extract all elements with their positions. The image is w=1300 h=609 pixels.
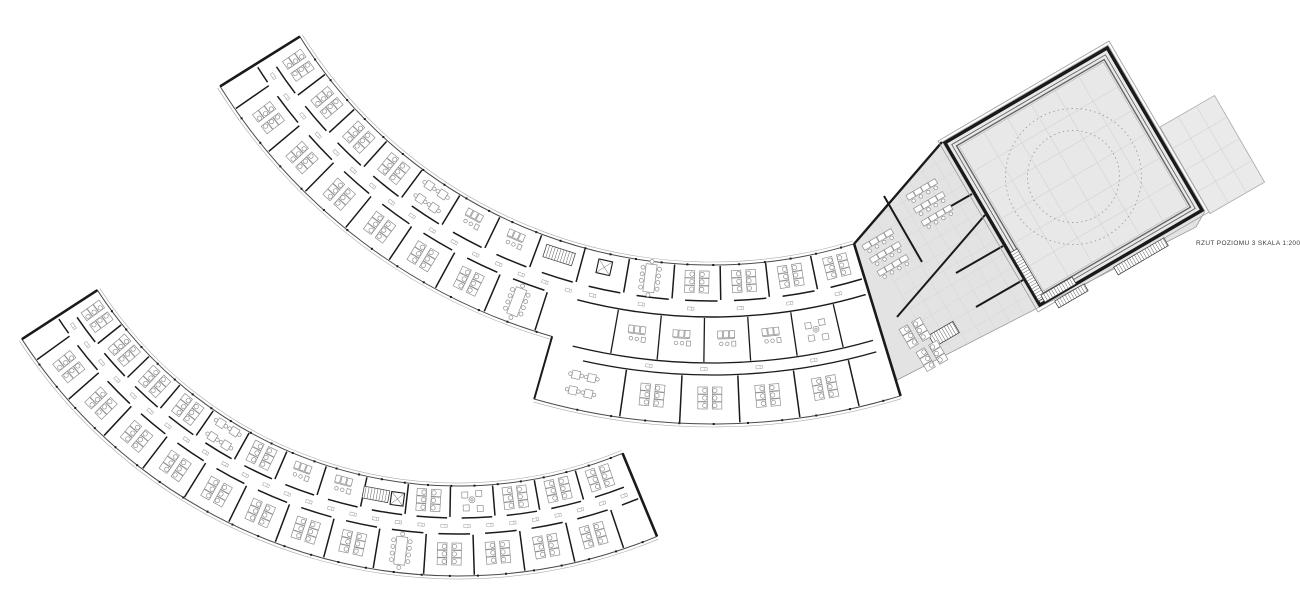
facade-mullion [402,153,404,155]
facade-mullion [565,471,567,473]
room-tag [418,523,425,526]
facade-mullion [114,446,116,448]
facade-mullion [314,58,316,60]
room-tag [786,301,793,305]
facade-mullion [364,118,366,120]
facade-mullion [174,379,176,381]
room-tag [737,307,744,310]
facade-mullion [576,409,578,411]
facade-mullion [313,460,315,462]
facade-mullion [505,573,507,575]
facade-mullion [644,420,646,422]
facade-mullion [713,423,715,425]
facade-mullion [588,558,590,560]
floor-plan-drawing: RZUT POZIOMU 3 SKALA 1:200 [0,0,1300,609]
facade-mullion [271,442,273,444]
room-tag [509,521,516,525]
facade-mullion [615,550,617,552]
facade-mullion [422,169,424,171]
facade-mullion [330,79,332,81]
facade-mullion [393,571,395,573]
facade-mullion [346,229,348,231]
facade-mullion [230,420,232,422]
facade-mullion [511,221,513,223]
facade-mullion [678,422,680,424]
facade-mullion [346,99,348,101]
facade-mullion [371,248,373,250]
facade-mullion [488,210,490,212]
facade-mullion [56,386,58,388]
facade-mullion [257,535,259,537]
facade-mullion [323,209,325,211]
facade-mullion [157,363,159,365]
facade-mullion [465,197,467,199]
facade-mullion [610,457,612,459]
facade-mullion [506,321,508,323]
facade-mullion [536,331,538,333]
facade-mullion [241,117,243,119]
facade-mullion [159,481,161,483]
facade-mullion [450,296,452,298]
facade-mullion [301,188,303,190]
plan-caption: RZUT POZIOMU 3 SKALA 1:200 [1196,240,1300,247]
facade-mullion [404,482,406,484]
facade-mullion [560,240,562,242]
facade-mullion [292,452,294,454]
generated-plan [19,0,1300,579]
facade-mullion [74,407,76,409]
facade-mullion [450,485,452,487]
facade-mullion [365,567,367,569]
facade-mullion [686,263,688,265]
facade-mullion [336,468,338,470]
facade-mullion [474,485,476,487]
room-tag [756,365,763,369]
room-tag [701,367,707,370]
room-tag [487,523,494,526]
facade-mullion [250,432,252,434]
facade-mullion [283,545,285,547]
facade-mullion [882,400,884,402]
facade-mullion [94,427,96,429]
facade-mullion [790,258,792,260]
room-tag [646,364,653,368]
room-tag [464,524,470,527]
facade-mullion [533,569,535,571]
facade-mullion [449,575,451,577]
facade-mullion [358,473,360,475]
facade-mullion [136,464,138,466]
facade-mullion [38,364,40,366]
room-tag [441,524,447,527]
facade-mullion [712,264,714,266]
room-tag [687,307,694,310]
elevator [390,492,405,507]
facade-mullion [259,142,261,144]
facade-mullion [310,554,312,556]
facade-mullion [642,541,644,543]
facade-mullion [543,476,545,478]
facade-mullion [635,258,637,260]
floor-plan-page: RZUT POZIOMU 3 SKALA 1:200 [0,0,1300,609]
facade-mullion [561,565,563,567]
partition-wall [704,318,705,362]
facade-mullion [840,247,842,249]
partition-wall [720,266,721,300]
facade-mullion [815,415,817,417]
facade-mullion [497,483,499,485]
facade-mullion [182,496,184,498]
facade-mullion [337,561,339,563]
facade-mullion [849,408,851,410]
facade-mullion [421,574,423,576]
facade-mullion [610,253,612,255]
facade-mullion [584,247,586,249]
facade-mullion [125,329,127,331]
facade-mullion [781,419,783,421]
corridor-wall [685,300,717,301]
facade-mullion [478,309,480,311]
facade-mullion [111,310,113,312]
facade-mullion [747,422,749,424]
facade-mullion [140,346,142,348]
facade-mullion [815,253,817,255]
facade-mullion [396,265,398,267]
facade-mullion [381,478,383,480]
facade-mullion [764,261,766,263]
facade-mullion [427,484,429,486]
facade-mullion [588,465,590,467]
partition-wall [450,487,451,517]
facade-mullion [279,165,281,167]
facade-mullion [423,281,425,283]
room-tag [638,302,645,306]
facade-mullion [661,261,663,263]
facade-mullion [382,136,384,138]
facade-mullion [232,524,234,526]
elevator [596,259,613,276]
facade-mullion [443,184,445,186]
facade-mullion [520,480,522,482]
facade-mullion [210,407,212,409]
upper-office-wing [218,35,902,427]
facade-mullion [738,263,740,265]
facade-mullion [192,393,194,395]
facade-mullion [206,511,208,513]
facade-mullion [610,415,612,417]
facade-mullion [477,575,479,577]
facade-mullion [535,231,537,233]
room-tag [395,520,402,524]
